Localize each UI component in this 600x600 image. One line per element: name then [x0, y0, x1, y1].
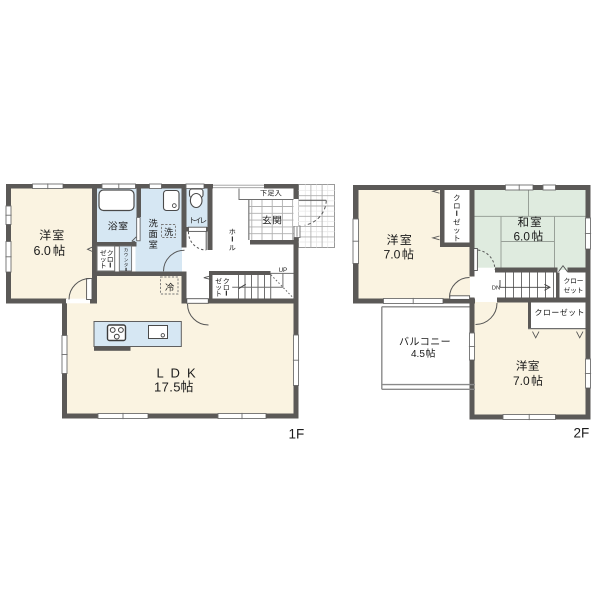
svg-text:DN: DN — [492, 285, 500, 291]
svg-text:6.0: 6.0 — [34, 244, 51, 258]
svg-text:L D K: L D K — [157, 365, 198, 380]
svg-text:UP: UP — [279, 267, 288, 274]
svg-text:6.0: 6.0 — [514, 229, 531, 243]
svg-text:1F: 1F — [289, 427, 305, 442]
svg-text:4.5: 4.5 — [411, 349, 425, 360]
svg-text:7.0: 7.0 — [384, 248, 401, 262]
svg-text:7.0: 7.0 — [513, 374, 530, 388]
svg-text:17.5: 17.5 — [154, 379, 181, 394]
svg-text:2F: 2F — [574, 426, 590, 441]
